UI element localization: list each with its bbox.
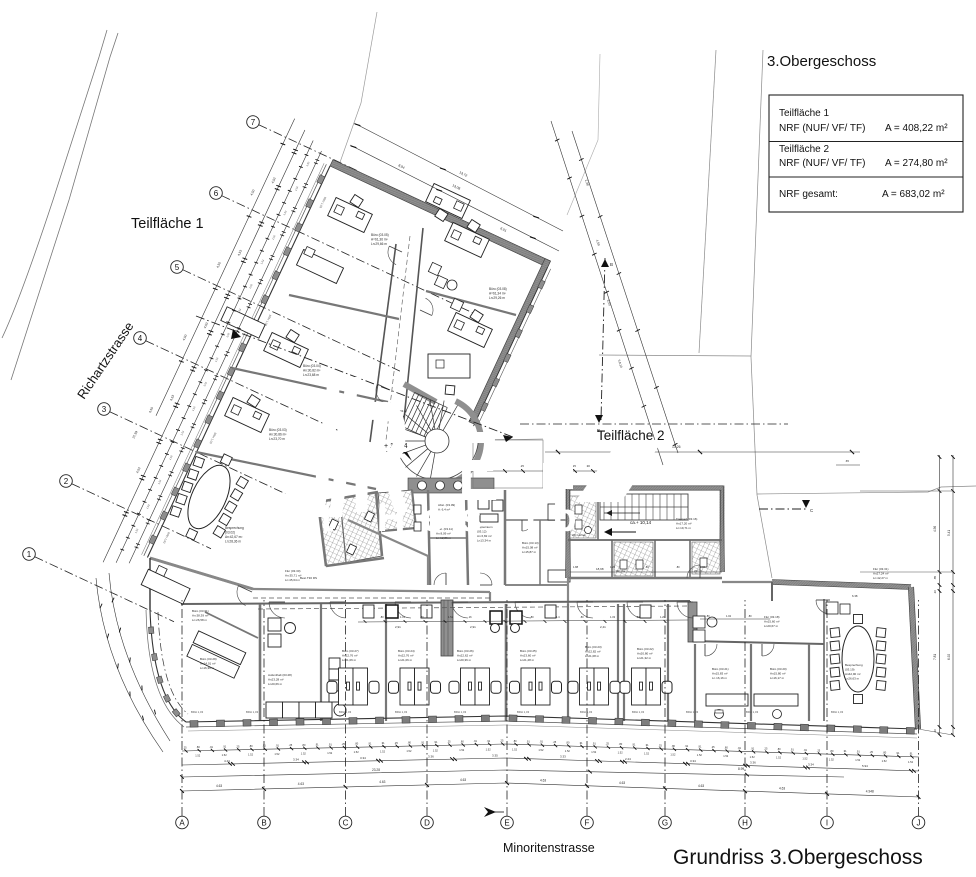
svg-text:.25: .25 xyxy=(341,742,345,746)
svg-text:1.33: 1.33 xyxy=(610,615,616,619)
svg-text:.91: .91 xyxy=(539,740,543,744)
svg-text:.91: .91 xyxy=(368,741,372,745)
svg-text:2,91: 2,91 xyxy=(395,625,401,629)
svg-text:A = 683,02 m²: A = 683,02 m² xyxy=(882,189,945,200)
svg-text:.91: .91 xyxy=(843,749,847,753)
svg-text:NRF (NUF/ VF/ TF): NRF (NUF/ VF/ TF) xyxy=(779,123,865,134)
svg-text:.25: .25 xyxy=(447,740,451,744)
svg-text:Büro (03.01): Büro (03.01) xyxy=(192,609,209,613)
svg-text:1.52: 1.52 xyxy=(776,756,782,760)
svg-text:Büro (03.29): Büro (03.29) xyxy=(200,657,217,661)
svg-text:.80: .80 xyxy=(619,742,623,746)
svg-text:1.52: 1.52 xyxy=(433,749,439,753)
svg-text:A=61,34 m²: A=61,34 m² xyxy=(489,292,506,296)
svg-text:.25: .25 xyxy=(183,745,187,749)
svg-text:.80: .80 xyxy=(830,749,834,753)
svg-text:Teilfläche 1: Teilfläche 1 xyxy=(131,216,204,232)
svg-text:2,91: 2,91 xyxy=(470,625,476,629)
svg-text:Flur (03.30): Flur (03.30) xyxy=(285,569,301,573)
svg-text:1.52: 1.52 xyxy=(591,750,597,754)
svg-text:1.52: 1.52 xyxy=(697,753,703,757)
svg-text:1: 1 xyxy=(27,550,32,559)
svg-text:1.52: 1.52 xyxy=(538,748,544,752)
svg-text:.80: .80 xyxy=(645,565,649,569)
svg-text:.80: .80 xyxy=(513,739,517,743)
svg-text:4.63: 4.63 xyxy=(779,787,785,791)
svg-text:1.52: 1.52 xyxy=(222,753,228,757)
svg-text:Ln:19,71 m: Ln:19,71 m xyxy=(676,526,692,530)
svg-text:3.35: 3.35 xyxy=(492,753,498,757)
svg-text:4.56: 4.56 xyxy=(933,526,937,532)
svg-text:.80: .80 xyxy=(636,615,640,619)
svg-text:.65: .65 xyxy=(845,459,849,463)
svg-text:BRH 1,03: BRH 1,03 xyxy=(686,710,699,714)
svg-text:Büro (03.08): Büro (03.08) xyxy=(489,287,507,291)
svg-text:.91: .91 xyxy=(803,748,807,752)
svg-text:BRH 1,03: BRH 1,03 xyxy=(632,710,645,714)
svg-text:Teilfläche 2: Teilfläche 2 xyxy=(779,144,829,155)
svg-text:A=61,36 m²: A=61,36 m² xyxy=(371,238,388,242)
svg-text:Büro (03.26): Büro (03.26) xyxy=(457,649,474,653)
svg-text:Ln20,36 m: Ln20,36 m xyxy=(457,658,472,662)
svg-text:An:42,67 m²: An:42,67 m² xyxy=(225,535,242,539)
svg-text:1.52: 1.52 xyxy=(406,749,412,753)
svg-text:BRH 1,03: BRH 1,03 xyxy=(191,710,204,714)
svg-text:H: H xyxy=(742,818,748,827)
svg-text:Ln20,67 m: Ln20,67 m xyxy=(764,624,779,628)
svg-text:1.52: 1.52 xyxy=(327,751,333,755)
svg-text:.36: .36 xyxy=(933,590,937,594)
svg-text:13.26: 13.26 xyxy=(672,445,681,449)
svg-text:4.63: 4.63 xyxy=(216,784,222,788)
svg-text:Best.T30 RS: Best.T30 RS xyxy=(300,576,317,580)
svg-text:.91: .91 xyxy=(645,743,649,747)
svg-text:Ln16,17 m: Ln16,17 m xyxy=(770,676,785,680)
svg-text:Büro (03.20): Büro (03.20) xyxy=(770,667,787,671)
svg-text:1.52: 1.52 xyxy=(882,759,888,763)
svg-text:Treppe2 (03.16): Treppe2 (03.16) xyxy=(676,517,697,521)
svg-text:.91: .91 xyxy=(381,741,385,745)
svg-text:Ln16,36 m: Ln16,36 m xyxy=(200,666,215,670)
svg-text:.80: .80 xyxy=(777,747,781,751)
svg-text:3.36: 3.36 xyxy=(750,761,756,765)
svg-text:1.52: 1.52 xyxy=(274,752,280,756)
svg-text:.91: .91 xyxy=(328,742,332,746)
svg-text:3.Obergeschoss: 3.Obergeschoss xyxy=(767,53,876,70)
svg-text:E: E xyxy=(504,818,509,827)
svg-text:.25: .25 xyxy=(817,748,821,752)
svg-text:WC Da: WC Da xyxy=(616,569,625,573)
svg-text:F: F xyxy=(585,818,590,827)
svg-text:D: D xyxy=(424,818,430,827)
svg-text:Büro (03.25): Büro (03.25) xyxy=(520,649,537,653)
svg-text:.80: .80 xyxy=(706,614,710,618)
svg-text:4.63: 4.63 xyxy=(460,778,466,782)
svg-text:1.52: 1.52 xyxy=(380,750,386,754)
svg-text:4.63: 4.63 xyxy=(619,781,625,785)
svg-text:18,98: 18,98 xyxy=(596,567,604,571)
svg-text:Büro (03.03): Büro (03.03) xyxy=(269,428,287,432)
svg-text:B: B xyxy=(610,262,613,267)
svg-text:4.948: 4.948 xyxy=(866,789,874,793)
svg-text:.80: .80 xyxy=(724,746,728,750)
svg-text:Ln:28,36 m: Ln:28,36 m xyxy=(225,540,241,544)
svg-text:I: I xyxy=(826,818,828,827)
svg-text:4.63: 4.63 xyxy=(540,778,546,782)
svg-text:Büro (03.13): Büro (03.13) xyxy=(522,541,539,545)
svg-text:ca.+ 10,14: ca.+ 10,14 xyxy=(630,520,652,525)
svg-text:A = 274,80 m²: A = 274,80 m² xyxy=(885,158,948,169)
svg-text:NRF (NUF/ VF/ TF): NRF (NUF/ VF/ TF) xyxy=(779,158,865,169)
svg-text:.91: .91 xyxy=(896,751,900,755)
svg-text:1.52: 1.52 xyxy=(750,755,756,759)
svg-text:Büro (03.04): Büro (03.04) xyxy=(303,364,321,368)
svg-text:BRH 1,03: BRH 1,03 xyxy=(580,710,593,714)
svg-text:Ln:26,58 m: Ln:26,58 m xyxy=(192,618,208,622)
svg-text:3.34: 3.34 xyxy=(293,758,299,762)
svg-text:6.92: 6.92 xyxy=(947,654,951,660)
svg-text:Büro (03.22): Büro (03.22) xyxy=(637,647,654,651)
svg-text:Minoritenstrasse: Minoritenstrasse xyxy=(503,841,595,855)
svg-text:.25: .25 xyxy=(500,739,504,743)
svg-text:An:30,86 m²: An:30,86 m² xyxy=(269,433,286,437)
svg-text:Ln:23,68 m: Ln:23,68 m xyxy=(303,373,319,377)
svg-text:An22,76 m²: An22,76 m² xyxy=(342,654,358,658)
svg-text:1.52: 1.52 xyxy=(618,751,624,755)
svg-text:.91: .91 xyxy=(223,745,227,749)
svg-text:3: 3 xyxy=(102,405,107,414)
svg-text:4.63: 4.63 xyxy=(379,780,385,784)
svg-text:Aufenthalt (03.28): Aufenthalt (03.28) xyxy=(268,673,292,677)
svg-text:3.33: 3.33 xyxy=(560,755,566,759)
svg-text:.25: .25 xyxy=(764,747,768,751)
svg-text:1.52: 1.52 xyxy=(248,753,254,757)
svg-text:Grundriss 3.Obergeschoss: Grundriss 3.Obergeschoss xyxy=(673,846,923,869)
svg-text:.90: .90 xyxy=(586,464,590,468)
svg-text:.80: .80 xyxy=(748,614,752,618)
svg-text:An22,76 m²: An22,76 m² xyxy=(398,654,414,658)
svg-text:An15,08 m²: An15,08 m² xyxy=(522,546,538,550)
svg-text:2,41: 2,41 xyxy=(600,625,606,629)
svg-text:.91: .91 xyxy=(526,739,530,743)
svg-text:.91: .91 xyxy=(421,740,425,744)
svg-text:.25: .25 xyxy=(236,744,240,748)
svg-text:.80: .80 xyxy=(883,751,887,755)
svg-text:1.52: 1.52 xyxy=(723,754,729,758)
svg-text:Ln21,28 m: Ln21,28 m xyxy=(520,658,535,662)
svg-text:2.24: 2.24 xyxy=(625,757,631,761)
svg-text:A = 408,22 m²: A = 408,22 m² xyxy=(885,123,948,134)
svg-text:.80: .80 xyxy=(420,615,424,619)
svg-text:Büro (03.24): Büro (03.24) xyxy=(398,649,415,653)
svg-text:An15,60 m²: An15,60 m² xyxy=(764,620,780,624)
svg-text:Büro (03.21): Büro (03.21) xyxy=(712,667,729,671)
svg-text:(03.19): (03.19) xyxy=(845,668,855,672)
svg-text:1.52: 1.52 xyxy=(448,615,454,619)
svg-text:1.52: 1.52 xyxy=(565,749,571,753)
svg-text:.91: .91 xyxy=(856,750,860,754)
svg-text:.25: .25 xyxy=(605,742,609,746)
svg-text:An:30,82 m²: An:30,82 m² xyxy=(303,369,320,373)
svg-text:Besprechung: Besprechung xyxy=(225,526,244,530)
svg-text:G: G xyxy=(662,818,668,827)
svg-text:.91: .91 xyxy=(275,743,279,747)
svg-text:.91: .91 xyxy=(751,746,755,750)
svg-text:An:35,71 m²: An:35,71 m² xyxy=(285,574,301,578)
svg-text:.80: .80 xyxy=(249,744,253,748)
svg-text:.25: .25 xyxy=(520,464,524,468)
svg-text:6.38: 6.38 xyxy=(852,594,858,598)
svg-text:BRH 1,03: BRH 1,03 xyxy=(246,710,259,714)
svg-text:23.28: 23.28 xyxy=(372,768,380,772)
svg-text:.25: .25 xyxy=(658,743,662,747)
svg-text:Ln:29,26 m: Ln:29,26 m xyxy=(489,296,505,300)
svg-text:An14,01 m²: An14,01 m² xyxy=(200,662,216,666)
svg-text:4.44: 4.44 xyxy=(224,759,230,763)
svg-text:BRH 1,03: BRH 1,03 xyxy=(517,710,530,714)
svg-text:1.52: 1.52 xyxy=(195,754,201,758)
svg-text:4: 4 xyxy=(138,334,143,343)
svg-text:Besprechung: Besprechung xyxy=(845,663,863,667)
svg-text:.91: .91 xyxy=(315,743,319,747)
svg-text:An20,80 m²: An20,80 m² xyxy=(637,652,653,656)
svg-text:1.52: 1.52 xyxy=(354,750,360,754)
svg-text:C: C xyxy=(343,818,349,827)
svg-text:.91: .91 xyxy=(487,739,491,743)
svg-text:An17,20 m²: An17,20 m² xyxy=(676,522,692,526)
svg-text:1.01: 1.01 xyxy=(400,615,406,619)
svg-text:An15,83 m²: An15,83 m² xyxy=(712,672,728,676)
svg-text:.25: .25 xyxy=(394,741,398,745)
svg-text:3.34: 3.34 xyxy=(808,763,814,767)
svg-text:Ln21,32 m: Ln21,32 m xyxy=(637,656,652,660)
svg-text:BRH 1,03: BRH 1,03 xyxy=(831,710,844,714)
svg-text:1.52: 1.52 xyxy=(512,747,518,751)
svg-text:Ln26,63 m: Ln26,63 m xyxy=(845,677,860,681)
svg-text:.80: .80 xyxy=(380,615,384,619)
svg-text:Büro (03.23): Büro (03.23) xyxy=(585,645,602,649)
svg-text:Büro (03.05): Büro (03.05) xyxy=(371,233,389,237)
svg-text:.91: .91 xyxy=(592,741,596,745)
svg-text:An22,62 m²: An22,62 m² xyxy=(457,654,473,658)
svg-text:.91: .91 xyxy=(473,739,477,743)
svg-text:.80: .80 xyxy=(530,615,534,619)
svg-text:(03.02): (03.02) xyxy=(225,531,235,535)
svg-text:.91: .91 xyxy=(632,743,636,747)
svg-text:8.99: 8.99 xyxy=(738,767,744,771)
svg-text:1.52: 1.52 xyxy=(670,752,676,756)
svg-text:1.52: 1.52 xyxy=(802,757,808,761)
svg-text:.91: .91 xyxy=(579,741,583,745)
svg-text:.91: .91 xyxy=(909,751,913,755)
svg-text:BRH 1,03: BRH 1,03 xyxy=(395,710,408,714)
svg-text:2: 2 xyxy=(64,477,69,486)
svg-text:.25: .25 xyxy=(711,745,715,749)
svg-text:.91: .91 xyxy=(685,744,689,748)
svg-text:Ln21,06 m: Ln21,06 m xyxy=(398,658,413,662)
svg-text:1.52: 1.52 xyxy=(829,757,835,761)
svg-text:A: A xyxy=(179,818,185,827)
svg-text:1.52: 1.52 xyxy=(908,760,914,764)
svg-text:1.52: 1.52 xyxy=(301,751,307,755)
svg-text:1.20: 1.20 xyxy=(610,565,616,569)
svg-text:3.36: 3.36 xyxy=(428,755,434,759)
svg-text:.91: .91 xyxy=(434,740,438,744)
svg-text:.85: .85 xyxy=(933,575,937,580)
svg-text:1.4: 1.4 xyxy=(556,615,560,619)
svg-text:.80: .80 xyxy=(407,741,411,745)
svg-text:Teilfläche 1: Teilfläche 1 xyxy=(779,108,829,119)
svg-text:An23,60 m²: An23,60 m² xyxy=(520,654,536,658)
svg-text:Flur (03.18): Flur (03.18) xyxy=(764,615,780,619)
svg-text:BRH 1,03: BRH 1,03 xyxy=(454,710,467,714)
svg-text:Ln:23,70 m: Ln:23,70 m xyxy=(269,437,285,441)
svg-text:.80: .80 xyxy=(302,743,306,747)
svg-text:.80: .80 xyxy=(676,565,680,569)
svg-text:5.94: 5.94 xyxy=(862,764,868,768)
svg-text:1.52: 1.52 xyxy=(855,758,861,762)
svg-text:1.02: 1.02 xyxy=(726,614,732,618)
svg-text:3.34: 3.34 xyxy=(690,759,696,763)
svg-text:1.52: 1.52 xyxy=(644,752,650,756)
svg-text:4.63: 4.63 xyxy=(298,782,304,786)
svg-text:.80: .80 xyxy=(580,615,584,619)
svg-text:Ln:45,64 m: Ln:45,64 m xyxy=(285,578,301,582)
svg-text:Ln15,87 m: Ln15,87 m xyxy=(522,550,537,554)
svg-text:7: 7 xyxy=(251,118,256,127)
svg-text:.25: .25 xyxy=(869,750,873,754)
svg-text:.80: .80 xyxy=(460,739,464,743)
svg-text:Ln20,66 m: Ln20,66 m xyxy=(268,682,283,686)
svg-text:Ln21,06 m: Ln21,06 m xyxy=(342,658,357,662)
svg-text:4.63: 4.63 xyxy=(698,784,704,788)
svg-text:.80: .80 xyxy=(196,745,200,749)
svg-text:3.34: 3.34 xyxy=(360,756,366,760)
svg-text:6: 6 xyxy=(214,189,219,198)
svg-text:.91: .91 xyxy=(698,745,702,749)
svg-text:.91: .91 xyxy=(737,746,741,750)
svg-text:An:38,39 m²: An:38,39 m² xyxy=(192,614,208,618)
svg-text:.91: .91 xyxy=(790,748,794,752)
svg-text:Flur (03.31): Flur (03.31) xyxy=(873,567,889,571)
svg-text:An23,28 m²: An23,28 m² xyxy=(268,678,284,682)
svg-text:Büro (03.27): Büro (03.27) xyxy=(342,649,359,653)
svg-text:5.41: 5.41 xyxy=(947,530,951,536)
svg-text:2.00: 2.00 xyxy=(700,565,706,569)
svg-text:B: B xyxy=(261,818,266,827)
svg-text:J: J xyxy=(917,818,921,827)
svg-text:st Hes ib: st Hes ib xyxy=(282,496,593,540)
svg-text:BRH 1,03: BRH 1,03 xyxy=(746,710,759,714)
svg-text:.25: .25 xyxy=(553,740,557,744)
svg-text:Ln:29,66 m: Ln:29,66 m xyxy=(371,242,387,246)
svg-text:1.52: 1.52 xyxy=(486,747,492,751)
svg-text:5: 5 xyxy=(175,263,180,272)
svg-text:7.81: 7.81 xyxy=(933,654,937,660)
svg-text:An15,80 m²: An15,80 m² xyxy=(770,672,786,676)
svg-text:.16: .16 xyxy=(468,615,472,619)
svg-text:Ln:42,27 m: Ln:42,27 m xyxy=(873,576,889,580)
svg-text:An42,90 m²: An42,90 m² xyxy=(845,672,861,676)
svg-text:1.52: 1.52 xyxy=(459,748,465,752)
svg-text:1.88: 1.88 xyxy=(573,565,579,569)
svg-text:.80: .80 xyxy=(566,741,570,745)
svg-text:NRF gesamt:: NRF gesamt: xyxy=(779,189,838,200)
svg-text:.80: .80 xyxy=(671,744,675,748)
svg-text:.91: .91 xyxy=(209,745,213,749)
svg-text:.80: .80 xyxy=(355,742,359,746)
svg-text:.25: .25 xyxy=(289,743,293,747)
svg-text:Ln 16,16 m: Ln 16,16 m xyxy=(712,676,728,680)
